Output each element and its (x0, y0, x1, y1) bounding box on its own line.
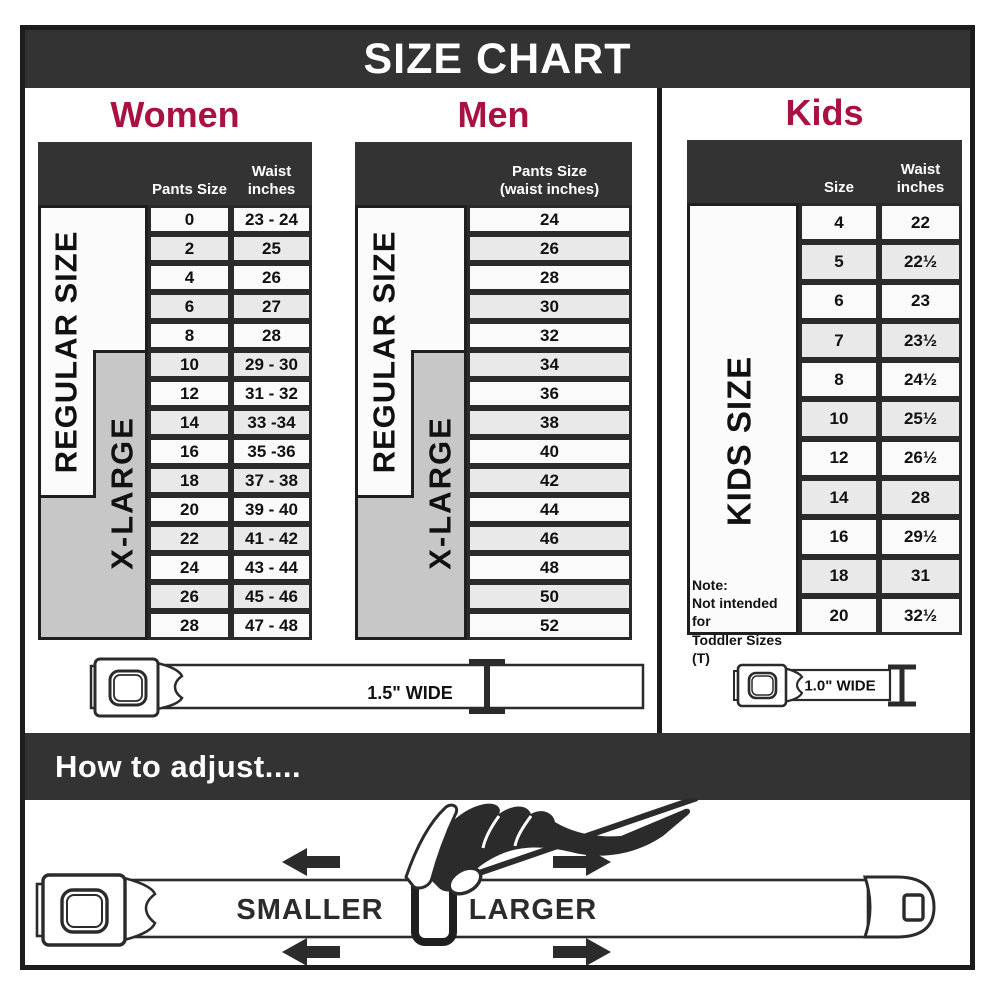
women-size-range-label: REGULAR SIZE X-LARGE (38, 205, 148, 645)
table-cell: 27 (231, 292, 312, 321)
table-cell: 18 (148, 466, 231, 495)
table-cell: 8 (148, 321, 231, 350)
table-cell: 24 (467, 205, 632, 234)
kids-waist-line1: Waist (879, 161, 962, 180)
table-cell: 45 - 46 (231, 582, 312, 611)
kids-table-rows: 422522½623723½824½1025½1226½14281629½183… (799, 203, 962, 635)
table-cell: 44 (467, 495, 632, 524)
kids-col-size-header: Size (799, 179, 879, 198)
table-cell: 42 (467, 466, 632, 495)
adult-belt-width-label: 1.5" WIDE (367, 683, 453, 703)
table-cell: 24 (148, 553, 231, 582)
kids-col-waist-header: Waist inches (879, 161, 962, 199)
table-cell: 7 (799, 321, 879, 360)
women-col-waist-header: Waist inches (231, 163, 312, 201)
table-cell: 34 (467, 350, 632, 379)
table-cell: 25½ (879, 399, 962, 438)
kids-side-label: KIDS SIZE (721, 356, 758, 526)
table-cell: 28 (231, 321, 312, 350)
table-cell: 14 (799, 478, 879, 517)
adult-belt-illustration: 1.5" WIDE (85, 650, 650, 730)
men-heading: Men (355, 94, 632, 136)
table-cell: 43 - 44 (231, 553, 312, 582)
table-cell: 8 (799, 360, 879, 399)
kids-size-range-label: KIDS SIZE (687, 203, 799, 640)
table-cell: 12 (148, 379, 231, 408)
table-cell: 29½ (879, 517, 962, 556)
page-title: SIZE CHART (364, 35, 632, 84)
table-cell: 25 (231, 234, 312, 263)
men-table-header: Pants Size (waist inches) (355, 142, 632, 205)
women-col-size-header: Pants Size (148, 181, 231, 200)
table-cell: 26½ (879, 439, 962, 478)
table-cell: 4 (799, 203, 879, 242)
table-cell: 0 (148, 205, 231, 234)
women-heading: Women (38, 94, 312, 136)
kids-note-line2: Not intended for (692, 594, 798, 630)
table-cell: 28 (467, 263, 632, 292)
men-table-rows: 242628303234363840424446485052 (467, 205, 632, 640)
table-cell: 23½ (879, 321, 962, 360)
table-cell: 16 (148, 437, 231, 466)
table-cell: 41 - 42 (231, 524, 312, 553)
table-cell: 32 (467, 321, 632, 350)
size-chart-page: SIZE CHART Women Men Kids Pants Size Wai… (0, 0, 1000, 1000)
table-cell: 23 (879, 282, 962, 321)
table-cell: 5 (799, 242, 879, 281)
table-cell: 32½ (879, 596, 962, 635)
table-cell: 28 (148, 611, 231, 640)
men-col-header: Pants Size (waist inches) (467, 163, 632, 201)
kids-width-marker (888, 667, 916, 704)
table-cell: 52 (467, 611, 632, 640)
table-cell: 29 - 30 (231, 350, 312, 379)
table-cell: 31 - 32 (231, 379, 312, 408)
table-cell: 22 (148, 524, 231, 553)
table-cell: 23 - 24 (231, 205, 312, 234)
women-waist-line1: Waist (231, 163, 312, 182)
table-cell: 14 (148, 408, 231, 437)
women-waist-line2: inches (231, 181, 312, 200)
kids-belt-illustration: 1.0" WIDE (730, 658, 930, 718)
table-cell: 26 (148, 582, 231, 611)
kids-waist-line2: inches (879, 179, 962, 198)
smaller-arrow-top (282, 848, 340, 876)
section-divider (657, 88, 662, 733)
women-xlarge-label: X-LARGE (105, 416, 140, 570)
larger-label: LARGER (469, 894, 597, 926)
smaller-arrow-bottom (282, 938, 340, 966)
adult-buckle-button-inner (114, 675, 142, 701)
kids-table-header: Size Waist inches (687, 140, 962, 203)
table-cell: 39 - 40 (231, 495, 312, 524)
kids-heading: Kids (687, 92, 962, 134)
larger-arrow-bottom (553, 938, 611, 966)
table-cell: 33 -34 (231, 408, 312, 437)
men-col-line1: Pants Size (467, 163, 632, 182)
women-table-rows: 023 - 242254266278281029 - 301231 - 3214… (148, 205, 312, 640)
table-cell: 37 - 38 (231, 466, 312, 495)
title-bar: SIZE CHART (25, 30, 970, 88)
table-cell: 2 (148, 234, 231, 263)
table-cell: 38 (467, 408, 632, 437)
table-cell: 26 (467, 234, 632, 263)
table-cell: 20 (148, 495, 231, 524)
kids-note: Note: Not intended for Toddler Sizes (T) (692, 576, 798, 667)
adjust-heading: How to adjust.... (55, 749, 301, 785)
table-cell: 22 (879, 203, 962, 242)
table-cell: 28 (879, 478, 962, 517)
table-cell: 4 (148, 263, 231, 292)
table-cell: 31 (879, 557, 962, 596)
table-cell: 12 (799, 439, 879, 478)
men-size-range-label: REGULAR SIZE X-LARGE (355, 205, 467, 645)
adjust-buckle-button-inner (67, 895, 102, 927)
women-table-header: Pants Size Waist inches (38, 142, 312, 205)
table-cell: 50 (467, 582, 632, 611)
table-cell: 10 (148, 350, 231, 379)
kids-note-line1: Note: (692, 576, 798, 594)
table-cell: 30 (467, 292, 632, 321)
table-cell: 10 (799, 399, 879, 438)
men-col-line2: (waist inches) (467, 181, 632, 200)
table-cell: 46 (467, 524, 632, 553)
table-cell: 22½ (879, 242, 962, 281)
table-cell: 26 (231, 263, 312, 292)
men-regular-label: REGULAR SIZE (367, 231, 402, 474)
women-regular-label: REGULAR SIZE (49, 231, 84, 474)
adjust-illustration: SMALLER LARGER (25, 798, 970, 975)
smaller-label: SMALLER (236, 894, 383, 926)
table-cell: 18 (799, 557, 879, 596)
table-cell: 6 (799, 282, 879, 321)
adjust-belt-tail-hole (904, 895, 923, 920)
kids-buckle-button-inner (752, 676, 773, 695)
table-cell: 40 (467, 437, 632, 466)
table-cell: 16 (799, 517, 879, 556)
table-cell: 24½ (879, 360, 962, 399)
kids-note-line3: Toddler Sizes (T) (692, 631, 798, 667)
adjust-section-bar: How to adjust.... (25, 733, 970, 800)
kids-belt-width-label: 1.0" WIDE (804, 678, 875, 695)
table-cell: 36 (467, 379, 632, 408)
table-cell: 6 (148, 292, 231, 321)
table-cell: 20 (799, 596, 879, 635)
table-cell: 35 -36 (231, 437, 312, 466)
table-cell: 48 (467, 553, 632, 582)
men-xlarge-label: X-LARGE (423, 416, 458, 570)
table-cell: 47 - 48 (231, 611, 312, 640)
